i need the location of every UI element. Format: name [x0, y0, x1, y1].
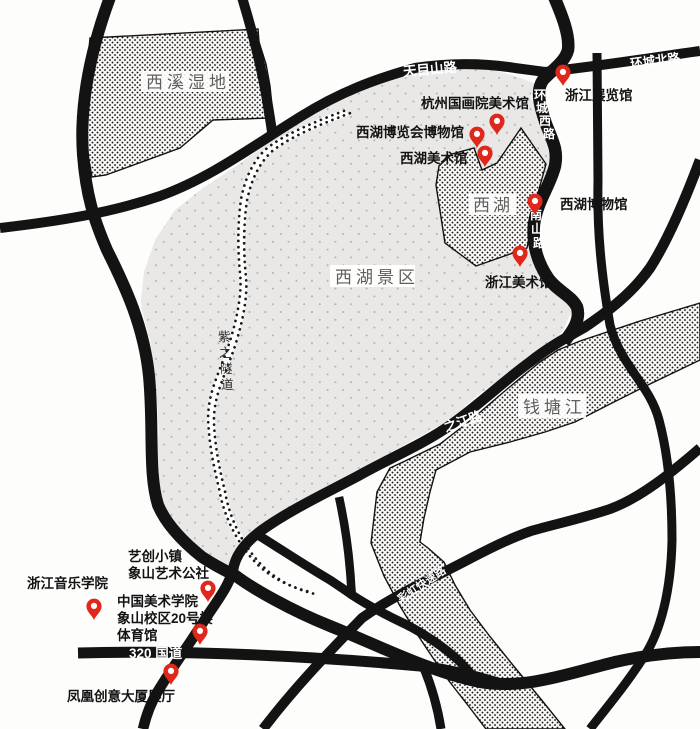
svg-text:体育馆: 体育馆 [117, 627, 158, 643]
svg-text:西: 西 [539, 114, 551, 128]
svg-text:浙江音乐学院: 浙江音乐学院 [27, 575, 108, 591]
svg-text:城: 城 [536, 100, 548, 115]
svg-text:路: 路 [543, 126, 556, 141]
svg-text:杭州国画院美术馆: 杭州国画院美术馆 [421, 95, 529, 111]
svg-text:中国美术学院: 中国美术学院 [117, 593, 198, 609]
svg-text:西湖: 西湖 [473, 196, 513, 215]
svg-text:钱塘江: 钱塘江 [523, 398, 586, 417]
svg-text:西湖美术馆: 西湖美术馆 [400, 150, 468, 166]
svg-text:道: 道 [221, 378, 234, 392]
svg-text:艺创小镇: 艺创小镇 [128, 548, 182, 564]
svg-text:路: 路 [533, 235, 546, 250]
svg-text:山: 山 [531, 221, 543, 236]
svg-text:西溪湿地: 西溪湿地 [146, 73, 230, 92]
svg-text:环城北路: 环城北路 [629, 50, 681, 71]
svg-text:浙江展览馆: 浙江展览馆 [565, 87, 633, 103]
svg-text:之: 之 [219, 346, 232, 360]
svg-text:浙江美术馆: 浙江美术馆 [485, 274, 553, 290]
svg-text:紫: 紫 [218, 330, 231, 344]
svg-text:环: 环 [534, 88, 546, 102]
svg-text:隧: 隧 [220, 361, 233, 376]
svg-text:西湖景区: 西湖景区 [335, 268, 419, 287]
svg-text:象山艺术公社: 象山艺术公社 [128, 565, 209, 581]
svg-text:象山校区20号楼: 象山校区20号楼 [117, 610, 214, 626]
svg-text:西湖博物馆: 西湖博物馆 [560, 196, 628, 212]
svg-text:凤凰创意大厦展厅: 凤凰创意大厦展厅 [67, 688, 175, 704]
svg-text:西湖博览会博物馆: 西湖博览会博物馆 [356, 124, 464, 140]
svg-text:320 国道: 320 国道 [129, 645, 183, 661]
